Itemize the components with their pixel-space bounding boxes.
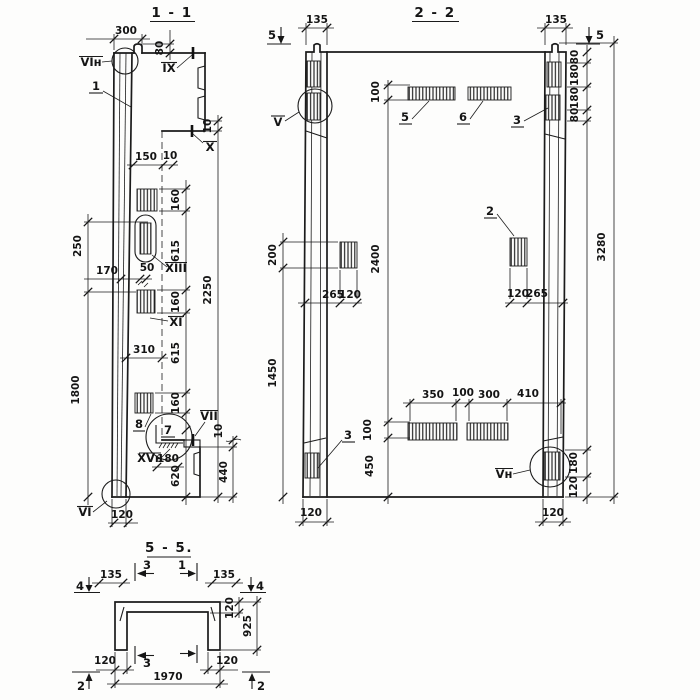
view-section-1-1: 1 - 1 bbox=[70, 5, 241, 527]
cut-mark-1-top: 1 bbox=[178, 558, 186, 572]
dim-120-foot-right: 120 bbox=[542, 507, 564, 519]
dim-80: 80 bbox=[569, 50, 581, 65]
callout-6: 6 bbox=[459, 110, 467, 124]
dim-135-right: 135 bbox=[545, 14, 567, 26]
dim-120: 120 bbox=[339, 289, 361, 301]
rebar-insert bbox=[137, 189, 157, 211]
cut-mark-2-right: 2 bbox=[257, 679, 265, 693]
dim-120-leg-right: 120 bbox=[216, 655, 238, 667]
callout-XI: XI bbox=[169, 315, 182, 329]
dim-160: 160 bbox=[170, 291, 182, 313]
dim-120-leg-left: 120 bbox=[94, 655, 116, 667]
dim-170: 170 bbox=[96, 265, 118, 277]
engineering-drawing: 1 - 1 bbox=[0, 0, 700, 700]
callout-3-top: 3 bbox=[513, 113, 521, 127]
dim-200: 200 bbox=[267, 244, 279, 266]
cut-mark-4-left: 4 bbox=[76, 579, 84, 593]
dim-925: 925 bbox=[242, 615, 254, 637]
callout-1: 1 bbox=[92, 79, 100, 93]
dim-135-right: 135 bbox=[213, 569, 235, 581]
rebar-6 bbox=[468, 87, 511, 100]
dim-180: 180 bbox=[569, 64, 581, 86]
dim-10-top: 10 bbox=[202, 119, 214, 134]
dim-100-top: 100 bbox=[370, 81, 382, 103]
dim-1970: 1970 bbox=[153, 671, 182, 683]
callout-XIII: XIII bbox=[165, 261, 187, 275]
callout-V: V bbox=[274, 115, 283, 129]
callout-VIn: VIн bbox=[80, 55, 101, 69]
callout-VI: VI bbox=[78, 505, 91, 519]
dim-620: 620 bbox=[170, 465, 182, 487]
detail-circle-top bbox=[112, 48, 138, 74]
dim-120-foot-left: 120 bbox=[300, 507, 322, 519]
cut-mark-5-right: 5 bbox=[596, 28, 604, 42]
view-title: 2 - 2 bbox=[414, 5, 455, 21]
dim-180: 180 bbox=[569, 87, 581, 109]
dim-2400: 2400 bbox=[370, 244, 382, 273]
callout-X: X bbox=[206, 140, 215, 154]
dim-135-left: 135 bbox=[100, 569, 122, 581]
callout-IX: IX bbox=[162, 61, 175, 75]
dim-160: 160 bbox=[170, 189, 182, 211]
cut-mark-4-right: 4 bbox=[256, 579, 264, 593]
dim-1450: 1450 bbox=[267, 358, 279, 387]
callout-8: 8 bbox=[135, 417, 143, 431]
dim-80: 80 bbox=[569, 108, 581, 123]
cut-mark-3-top: 3 bbox=[143, 558, 151, 572]
dim-440: 440 bbox=[218, 461, 230, 483]
drawing-sheet: 1 - 1 bbox=[0, 0, 700, 700]
callout-5: 5 bbox=[401, 110, 409, 124]
view-section-5-5: 5 - 5. 135 135 120 925 120 120 1970 4 4 … bbox=[72, 540, 270, 693]
dim-350: 350 bbox=[422, 389, 444, 401]
dim-120-rb: 120 bbox=[568, 476, 580, 498]
dim-120-thickness: 120 bbox=[224, 597, 236, 619]
dim-180-rb: 180 bbox=[568, 452, 580, 474]
cut-mark-5-left: 5 bbox=[268, 28, 276, 42]
dim-1800: 1800 bbox=[70, 375, 82, 404]
dim-310: 310 bbox=[133, 344, 155, 356]
dim-2250: 2250 bbox=[202, 275, 214, 304]
dim-150: 150 bbox=[135, 151, 157, 163]
callout-Vn: Vн bbox=[496, 467, 513, 481]
dim-615: 615 bbox=[170, 342, 182, 364]
cut-mark-2-left: 2 bbox=[77, 679, 85, 693]
dim-80: 80 bbox=[154, 41, 166, 56]
dim-120: 120 bbox=[111, 509, 133, 521]
dim-50: 50 bbox=[140, 262, 155, 274]
dim-300: 300 bbox=[115, 25, 137, 37]
insert-left bbox=[340, 242, 357, 268]
dim-300: 300 bbox=[478, 389, 500, 401]
dim-100: 100 bbox=[452, 387, 474, 399]
dim-10: 10 bbox=[163, 150, 178, 162]
view-section-2-2: 2 - 2 5 5 bbox=[267, 5, 618, 526]
dim-265: 265 bbox=[526, 288, 548, 300]
dim-410: 410 bbox=[517, 388, 539, 400]
dim-160: 160 bbox=[170, 392, 182, 414]
dim-10-plate: 10 bbox=[213, 424, 225, 439]
dim-615: 615 bbox=[170, 240, 182, 262]
rebar-5 bbox=[408, 87, 455, 100]
rebar-bottom bbox=[467, 423, 508, 440]
rebar-insert bbox=[135, 393, 153, 413]
rebar-insert bbox=[137, 290, 155, 313]
dim-250: 250 bbox=[72, 235, 84, 257]
dim-135-left: 135 bbox=[306, 14, 328, 26]
dim-3280: 3280 bbox=[596, 232, 608, 261]
callout-2: 2 bbox=[486, 204, 494, 218]
view-title: 1 - 1 bbox=[151, 5, 192, 21]
dim-450: 450 bbox=[364, 455, 376, 477]
view-title: 5 - 5. bbox=[145, 540, 193, 556]
callout-VII: VII bbox=[200, 409, 217, 423]
callout-7: 7 bbox=[164, 423, 172, 437]
rebar-bottom bbox=[408, 423, 457, 440]
dim-100-bottom: 100 bbox=[362, 419, 374, 441]
callout-3-bottom: 3 bbox=[344, 428, 352, 442]
insert-2 bbox=[510, 238, 527, 266]
